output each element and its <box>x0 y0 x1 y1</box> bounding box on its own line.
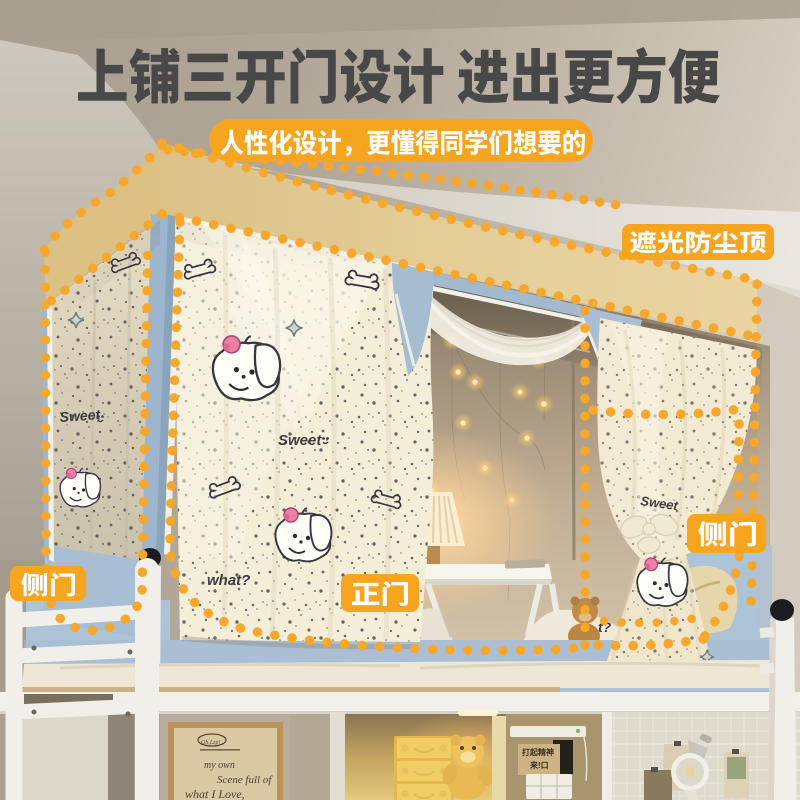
svg-text:Sweet: Sweet <box>59 406 102 425</box>
svg-text:what I Love,: what I Love, <box>185 787 245 800</box>
svg-text:Scene full of: Scene full of <box>217 774 273 786</box>
svg-text:来!口: 来!口 <box>529 760 549 770</box>
svg-text:my own: my own <box>204 760 235 771</box>
svg-text:Oh,Lzp!: Oh,Lzp! <box>201 740 221 746</box>
svg-text:what?: what? <box>207 572 250 589</box>
svg-text:Sweet: Sweet <box>278 432 322 449</box>
svg-text:打起精神: 打起精神 <box>522 747 554 757</box>
